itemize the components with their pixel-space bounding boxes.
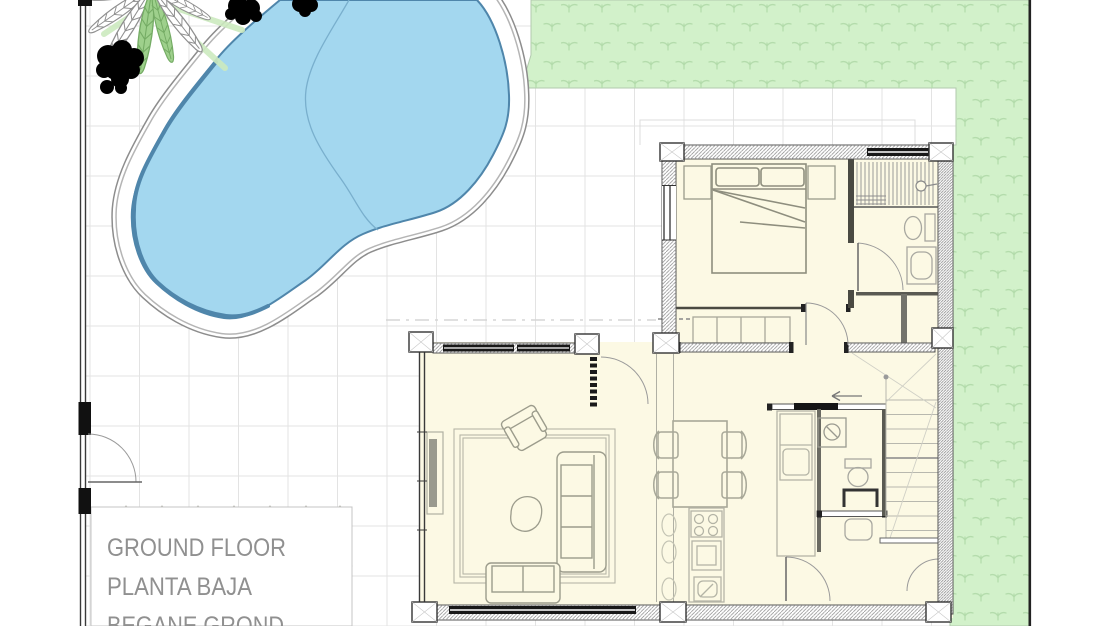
svg-text:PLANTA BAJA: PLANTA BAJA [107, 573, 252, 601]
svg-text:GROUND FLOOR: GROUND FLOOR [107, 534, 286, 562]
svg-text:BEGANE GROND: BEGANE GROND [107, 612, 284, 626]
